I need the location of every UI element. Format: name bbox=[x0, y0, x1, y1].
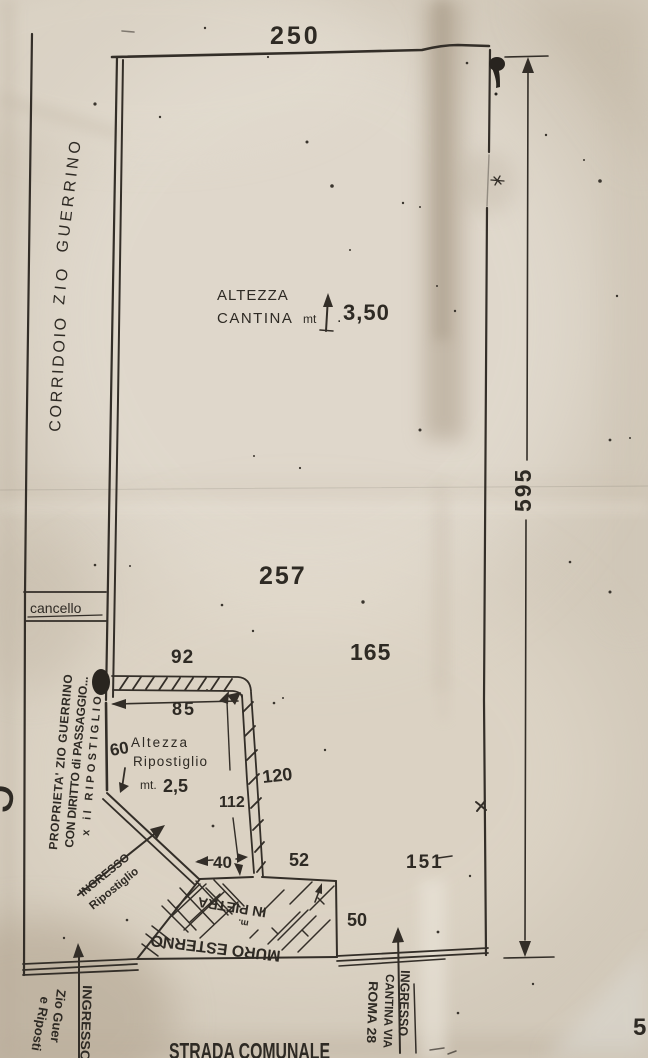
svg-text:250: 250 bbox=[270, 22, 321, 50]
svg-text:Ripostiglio: Ripostiglio bbox=[133, 754, 207, 769]
svg-text:mt: mt bbox=[303, 312, 317, 326]
svg-text:151: 151 bbox=[406, 852, 444, 873]
svg-text:ALTEZZA: ALTEZZA bbox=[217, 287, 289, 304]
svg-text:CANTINA: CANTINA bbox=[217, 310, 293, 327]
svg-text:CANTINA VIA: CANTINA VIA bbox=[380, 974, 397, 1049]
svg-text:2,5: 2,5 bbox=[163, 776, 188, 796]
svg-text:STRADA COMUNALE: STRADA COMUNALE bbox=[169, 1038, 330, 1058]
svg-text:52: 52 bbox=[289, 850, 309, 870]
svg-text:120: 120 bbox=[261, 764, 293, 787]
svg-text:3,50: 3,50 bbox=[343, 300, 390, 325]
svg-text:92: 92 bbox=[171, 647, 194, 668]
svg-text:mt.: mt. bbox=[140, 778, 157, 792]
svg-text:INGRESSO: INGRESSO bbox=[77, 985, 95, 1058]
svg-text:50: 50 bbox=[347, 910, 367, 930]
svg-text:40: 40 bbox=[213, 853, 232, 872]
svg-text:cancello: cancello bbox=[30, 600, 82, 616]
svg-text:60: 60 bbox=[108, 738, 130, 760]
svg-text:Altezza: Altezza bbox=[131, 735, 187, 750]
svg-text:.: . bbox=[337, 309, 341, 326]
svg-text:165: 165 bbox=[350, 639, 391, 665]
svg-text:595: 595 bbox=[510, 468, 536, 512]
svg-text:112: 112 bbox=[219, 794, 245, 811]
svg-text:ROMA 28: ROMA 28 bbox=[364, 981, 381, 1043]
svg-text:5: 5 bbox=[633, 1014, 646, 1041]
svg-text:85: 85 bbox=[172, 699, 196, 719]
svg-text:INGRESSO: INGRESSO bbox=[396, 970, 413, 1036]
svg-text:m.: m. bbox=[237, 917, 249, 929]
svg-text:257: 257 bbox=[259, 562, 307, 590]
